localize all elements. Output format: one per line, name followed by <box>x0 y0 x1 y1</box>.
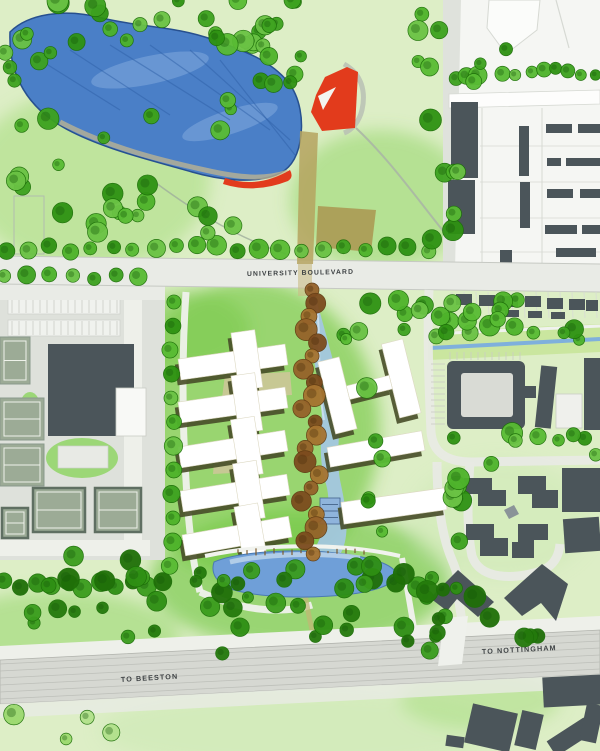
tree <box>408 20 428 40</box>
tree <box>88 272 101 285</box>
dark-building <box>500 250 512 264</box>
tree-shade <box>62 735 67 740</box>
tree-shade <box>164 561 171 568</box>
tree <box>361 556 381 576</box>
tree-shade <box>214 124 223 133</box>
dark-building <box>542 675 600 708</box>
tree-shade <box>196 569 202 575</box>
tree <box>558 327 570 339</box>
brown-tree-shade <box>306 483 312 489</box>
tree <box>444 295 461 312</box>
tree-shade <box>232 246 239 253</box>
tree-shade <box>467 589 477 599</box>
tree <box>166 511 180 525</box>
tree <box>161 558 178 575</box>
tree <box>188 236 205 253</box>
brown-tree-shade <box>297 454 307 464</box>
tree-shade <box>68 271 74 277</box>
tree <box>490 312 506 328</box>
tree-shade <box>378 528 383 533</box>
tree <box>495 66 510 81</box>
tree-shade <box>391 294 400 303</box>
tree-shade <box>0 272 6 278</box>
tree-shade <box>150 243 158 251</box>
tree-shade <box>82 713 88 719</box>
tree <box>154 573 172 591</box>
tree <box>66 269 80 283</box>
tree <box>361 494 375 508</box>
tree-shade <box>98 604 103 609</box>
tree-shade <box>568 430 574 436</box>
tree <box>394 617 414 637</box>
tree-shade <box>511 71 516 76</box>
tree <box>217 574 230 587</box>
tree <box>167 295 181 309</box>
tree-shade <box>91 226 100 235</box>
tree <box>121 630 135 644</box>
tree <box>270 240 290 260</box>
tree-shade <box>353 326 361 334</box>
tree-shade <box>452 584 457 589</box>
tree-shade <box>7 708 16 717</box>
tree-shade <box>190 200 199 209</box>
tree <box>20 28 33 41</box>
tree-shade <box>1 246 9 254</box>
tree <box>220 92 236 108</box>
tree-shade <box>427 574 433 580</box>
tree-shade <box>201 210 209 218</box>
tree <box>84 242 97 255</box>
tree <box>41 238 57 254</box>
tree-shade <box>201 13 208 20</box>
tree-shade <box>289 69 296 76</box>
tree <box>421 58 439 76</box>
tree-shade <box>255 76 262 83</box>
tree <box>295 51 306 62</box>
tree <box>243 562 259 578</box>
tree <box>341 334 352 345</box>
tree <box>95 571 115 591</box>
sports-centre-wing <box>116 388 146 436</box>
tree-shade <box>381 240 389 248</box>
tree <box>103 724 120 741</box>
terrace-building <box>586 300 598 311</box>
tree-shade <box>123 632 129 638</box>
tree <box>53 159 65 171</box>
tree-shade <box>342 335 347 340</box>
tree-shade <box>166 369 173 376</box>
brown-tree-shade <box>307 388 317 398</box>
tree-shade <box>106 202 115 211</box>
dark-building <box>580 189 600 198</box>
tree-shade <box>169 297 175 303</box>
tree <box>60 733 72 745</box>
tree <box>336 240 350 254</box>
tree <box>98 132 110 144</box>
tree <box>566 428 580 442</box>
brown-tree-shade <box>310 417 316 423</box>
tree-shade <box>167 440 175 448</box>
tree-shade <box>191 239 199 247</box>
tree-shade <box>411 24 420 33</box>
dark-building <box>520 182 530 228</box>
tree <box>575 69 586 80</box>
tree-shade <box>120 211 127 218</box>
tree-shade <box>424 645 432 653</box>
dark-building <box>556 248 596 257</box>
tree-shade <box>532 431 539 438</box>
dark-building <box>562 468 600 512</box>
tree-shade <box>98 574 107 583</box>
tree-shade <box>51 603 59 611</box>
tree-shade <box>168 321 175 328</box>
tree-shade <box>528 68 533 73</box>
tree-shade <box>111 270 117 276</box>
tree <box>231 618 250 637</box>
tree <box>211 121 230 140</box>
tree-shade <box>246 565 253 572</box>
tree-shade <box>150 627 156 633</box>
tree <box>422 230 441 249</box>
tree <box>509 434 523 448</box>
tree <box>266 593 286 613</box>
tree <box>144 108 159 123</box>
tree <box>421 642 438 659</box>
brown-tree-shade <box>309 377 316 384</box>
tree <box>167 415 182 430</box>
tree-shade <box>65 247 72 254</box>
tree-shade <box>71 36 79 44</box>
tree <box>315 242 331 258</box>
tree-shade <box>128 245 134 251</box>
tree <box>463 303 481 321</box>
tree-shade <box>297 53 302 58</box>
tree <box>549 62 561 74</box>
tree-shade <box>67 550 76 559</box>
tree-shade <box>371 436 378 443</box>
tree-shade <box>109 243 115 249</box>
tree-shade <box>264 21 270 27</box>
tree-shade <box>0 48 7 55</box>
tree-shade <box>267 78 275 86</box>
tree-shade <box>168 465 175 472</box>
tree-shade <box>560 329 565 334</box>
tree-shade <box>339 242 345 248</box>
tree <box>8 74 21 87</box>
tree-shade <box>33 55 41 63</box>
tree <box>62 244 78 260</box>
tree <box>201 226 216 241</box>
tree-shade <box>258 41 264 47</box>
tree-shade <box>337 582 346 591</box>
tree <box>216 647 229 660</box>
tree-shade <box>511 436 517 442</box>
tree-shade <box>289 563 298 572</box>
tree-shade <box>432 628 439 635</box>
brown-tree-shade <box>309 429 318 438</box>
sports-annex <box>58 446 108 468</box>
tree-shade <box>317 619 325 627</box>
tree-shade <box>70 608 75 613</box>
tree <box>242 592 253 603</box>
tree <box>438 324 454 340</box>
tree-shade <box>376 453 384 461</box>
tree-shade <box>233 579 239 585</box>
tree <box>499 43 512 56</box>
tree-shade <box>414 305 422 313</box>
tree <box>15 119 29 133</box>
tree <box>376 526 387 537</box>
tree <box>162 342 178 358</box>
dark-building <box>546 124 572 133</box>
tree-shade <box>100 134 105 139</box>
tennis-court <box>33 488 85 532</box>
tree-shade <box>518 631 527 640</box>
tennis-court <box>0 337 30 384</box>
tree-shade <box>105 727 113 735</box>
brown-tree-shade <box>308 549 314 555</box>
tree-shade <box>263 51 271 59</box>
tree <box>170 239 184 253</box>
dark-building <box>563 517 600 553</box>
tree-shade <box>46 49 52 55</box>
tree-shade <box>192 577 197 582</box>
tree <box>447 431 460 444</box>
tree <box>97 602 109 614</box>
tree-shade <box>529 328 535 334</box>
tree-shade <box>219 577 225 583</box>
tree <box>52 203 72 223</box>
tree <box>432 612 445 625</box>
brown-tree-shade <box>294 495 303 504</box>
tree-shade <box>279 575 286 582</box>
tree <box>388 290 408 310</box>
tennis-court <box>2 508 28 538</box>
tree-shade <box>539 65 546 72</box>
tree <box>64 546 84 566</box>
tree <box>164 391 178 405</box>
tree <box>360 293 381 314</box>
tree-shade <box>27 607 35 615</box>
tree <box>137 175 157 195</box>
brown-tree-shade <box>303 311 310 318</box>
tree-shade <box>446 298 454 306</box>
tree <box>147 591 167 611</box>
urban-zone <box>443 0 600 270</box>
tree <box>44 46 57 59</box>
tree <box>0 45 13 60</box>
tree <box>260 48 278 66</box>
access-road <box>0 284 165 300</box>
dark-building <box>519 126 529 176</box>
tree-shade <box>363 496 369 502</box>
tree-shade <box>431 331 438 338</box>
tree-shade <box>420 584 430 594</box>
tree <box>374 450 391 467</box>
dark-building <box>578 124 600 133</box>
tree-shade <box>454 536 461 543</box>
tree <box>277 572 292 587</box>
tree <box>6 171 25 190</box>
tree-shade <box>286 78 292 84</box>
tree-shade <box>20 269 28 277</box>
brown-tree <box>293 400 311 418</box>
brown-tree <box>291 491 311 511</box>
tree-shade <box>123 553 132 562</box>
tree-shade <box>441 327 448 334</box>
tree-shade <box>156 576 164 584</box>
tree <box>290 598 305 613</box>
tree <box>198 11 214 27</box>
tree-shade <box>146 111 153 118</box>
brown-tree-shade <box>298 322 308 332</box>
brown-tree-shade <box>300 443 307 450</box>
brown-tree-shade <box>313 469 321 477</box>
tree <box>68 33 85 50</box>
tree-shade <box>22 30 28 36</box>
tree-shade <box>5 63 11 69</box>
tree-shade <box>234 621 242 629</box>
tree-shade <box>497 69 504 76</box>
tree-shade <box>311 633 316 638</box>
tree-shade <box>403 637 409 643</box>
tree <box>262 18 276 32</box>
tree <box>431 21 448 38</box>
tree <box>314 616 333 635</box>
tree-shade <box>350 561 358 569</box>
tree-shade <box>10 76 16 82</box>
tree <box>148 625 160 637</box>
brown-tree-shade <box>311 337 319 345</box>
tree-shade <box>156 14 163 21</box>
brown-tree-shade <box>309 297 318 306</box>
tree-shade <box>449 209 456 216</box>
masterplan-image: UNIVERSITY BOULEVARDTO BEESTONTO NOTTING… <box>0 0 600 751</box>
tree-shade <box>41 112 51 122</box>
tree <box>126 566 147 587</box>
tree <box>231 577 245 591</box>
tree <box>359 243 372 256</box>
site-plan-svg: UNIVERSITY BOULEVARDTO BEESTONTO NOTTING… <box>0 0 600 751</box>
tree-shade <box>501 45 507 51</box>
tree <box>164 437 182 455</box>
tree-shade <box>86 244 92 250</box>
tree-shade <box>203 228 210 235</box>
tree-shade <box>252 242 261 251</box>
sports-zone <box>0 290 165 560</box>
tree <box>480 608 499 627</box>
tree-shade <box>15 582 22 589</box>
tree <box>87 222 107 242</box>
tree <box>506 318 523 335</box>
tree <box>224 217 242 235</box>
tree <box>368 434 383 449</box>
tree-shade <box>417 10 423 16</box>
tree-shade <box>211 33 218 40</box>
tree-shade <box>226 602 234 610</box>
tree-shade <box>449 434 455 440</box>
tree-shade <box>227 220 235 228</box>
tree-shade <box>55 206 64 215</box>
tree <box>415 7 429 21</box>
tree-shade <box>423 113 433 123</box>
tree-shade <box>342 625 348 631</box>
tree <box>0 270 11 283</box>
tree <box>24 604 41 621</box>
tree-shade <box>425 233 434 242</box>
tree-shade <box>9 174 18 183</box>
tree-shade <box>359 578 367 586</box>
tree <box>120 34 133 47</box>
tree-shade <box>438 585 444 591</box>
tree <box>133 17 147 31</box>
tree <box>436 583 449 596</box>
tree-shade <box>434 310 442 318</box>
courtyard-building-stub <box>524 386 536 398</box>
tree-shade <box>414 57 420 63</box>
tree-shade <box>346 608 353 615</box>
tree <box>41 578 56 593</box>
tree <box>163 366 179 382</box>
campus-block-outline <box>556 394 582 428</box>
tree <box>399 238 416 255</box>
tree <box>164 533 182 551</box>
tree-shade <box>318 244 325 251</box>
tree-shade <box>273 243 282 252</box>
tree-shade <box>577 71 582 76</box>
tree-shade <box>129 570 138 579</box>
tree <box>107 241 120 254</box>
tree <box>451 533 468 550</box>
tree <box>340 623 354 637</box>
tree-shade <box>244 594 249 599</box>
tree-shade <box>54 161 59 166</box>
terrace-building <box>551 312 565 319</box>
tree <box>443 220 464 241</box>
tree-shade <box>468 76 475 83</box>
tree <box>356 378 377 399</box>
tree-shade <box>135 20 141 26</box>
tree <box>450 164 466 180</box>
tree-shade <box>169 417 176 424</box>
tree-shade <box>451 74 457 80</box>
tree-shade <box>297 247 303 253</box>
terrace-building <box>569 299 585 310</box>
tree <box>12 579 28 595</box>
tree-shade <box>210 239 219 248</box>
tree-shade <box>591 451 597 457</box>
brown-tree-shade <box>307 285 313 291</box>
brown-tree-shade <box>308 520 318 530</box>
tree-shade <box>451 472 461 482</box>
tree <box>249 239 268 258</box>
dark-building <box>547 189 573 198</box>
tree-shade <box>222 95 229 102</box>
tree-shade <box>150 595 159 604</box>
tree <box>284 76 297 89</box>
tree <box>448 468 470 490</box>
tree-shade <box>397 621 406 630</box>
brown-tree-shade <box>296 403 304 411</box>
tree <box>530 428 546 444</box>
tree <box>42 267 57 282</box>
tree-shade <box>164 345 171 352</box>
dark-building <box>547 158 561 166</box>
tree <box>466 73 482 89</box>
tree-shade <box>269 597 278 606</box>
terrace-building <box>547 298 563 309</box>
terrace-building <box>479 295 495 306</box>
